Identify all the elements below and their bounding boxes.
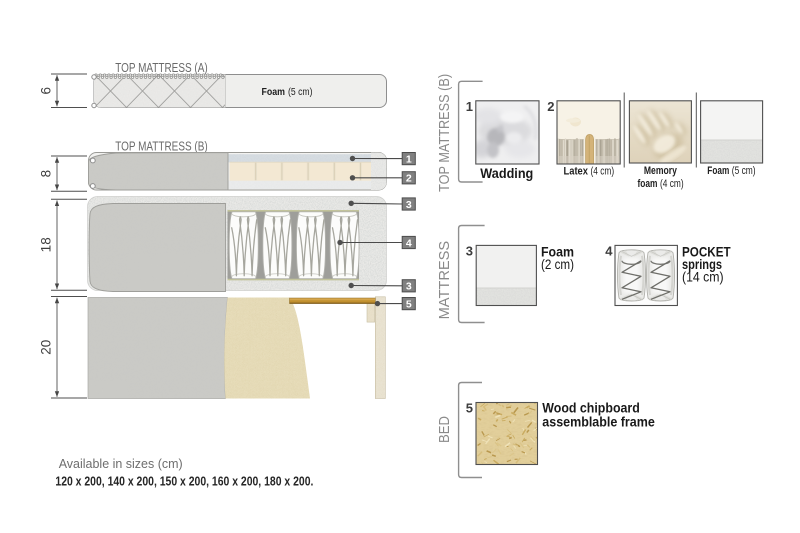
svg-text:TOP MATTRESS (B): TOP MATTRESS (B) <box>437 74 453 192</box>
svg-text:foam(4 cm): foam(4 cm) <box>638 178 684 190</box>
svg-text:(14 cm): (14 cm) <box>682 268 724 284</box>
svg-text:5: 5 <box>466 401 473 416</box>
svg-text:4: 4 <box>406 237 412 249</box>
svg-text:3: 3 <box>406 281 412 293</box>
svg-text:assemblable frame: assemblable frame <box>542 414 655 429</box>
svg-text:(2 cm): (2 cm) <box>541 257 574 272</box>
svg-text:4: 4 <box>605 244 613 259</box>
svg-text:Foam(5 cm): Foam(5 cm) <box>707 165 755 177</box>
svg-text:Wood chipboard: Wood chipboard <box>542 400 640 415</box>
svg-text:TOP MATTRESS (B): TOP MATTRESS (B) <box>115 139 208 154</box>
svg-text:1: 1 <box>466 99 473 114</box>
svg-text:5: 5 <box>406 299 412 311</box>
svg-text:MATTRESS: MATTRESS <box>437 241 453 320</box>
svg-text:TOP MATTRESS (A): TOP MATTRESS (A) <box>115 60 208 75</box>
svg-text:120 x 200, 140 x 200, 150 x 20: 120 x 200, 140 x 200, 150 x 200, 160 x 2… <box>55 475 313 489</box>
svg-text:2: 2 <box>547 99 554 114</box>
svg-text:Wadding: Wadding <box>480 165 533 181</box>
svg-text:2: 2 <box>406 173 412 185</box>
svg-text:8: 8 <box>39 170 54 178</box>
svg-text:BED: BED <box>437 416 453 443</box>
svg-text:20: 20 <box>39 340 54 355</box>
svg-text:1: 1 <box>406 154 412 166</box>
svg-text:3: 3 <box>406 199 412 211</box>
svg-text:3: 3 <box>466 244 473 259</box>
svg-text:6: 6 <box>39 87 54 95</box>
svg-text:Memory: Memory <box>644 165 678 177</box>
svg-text:Latex(4 cm): Latex(4 cm) <box>564 165 615 177</box>
svg-text:18: 18 <box>39 237 54 252</box>
svg-text:Available in sizes (cm): Available in sizes (cm) <box>59 456 183 471</box>
